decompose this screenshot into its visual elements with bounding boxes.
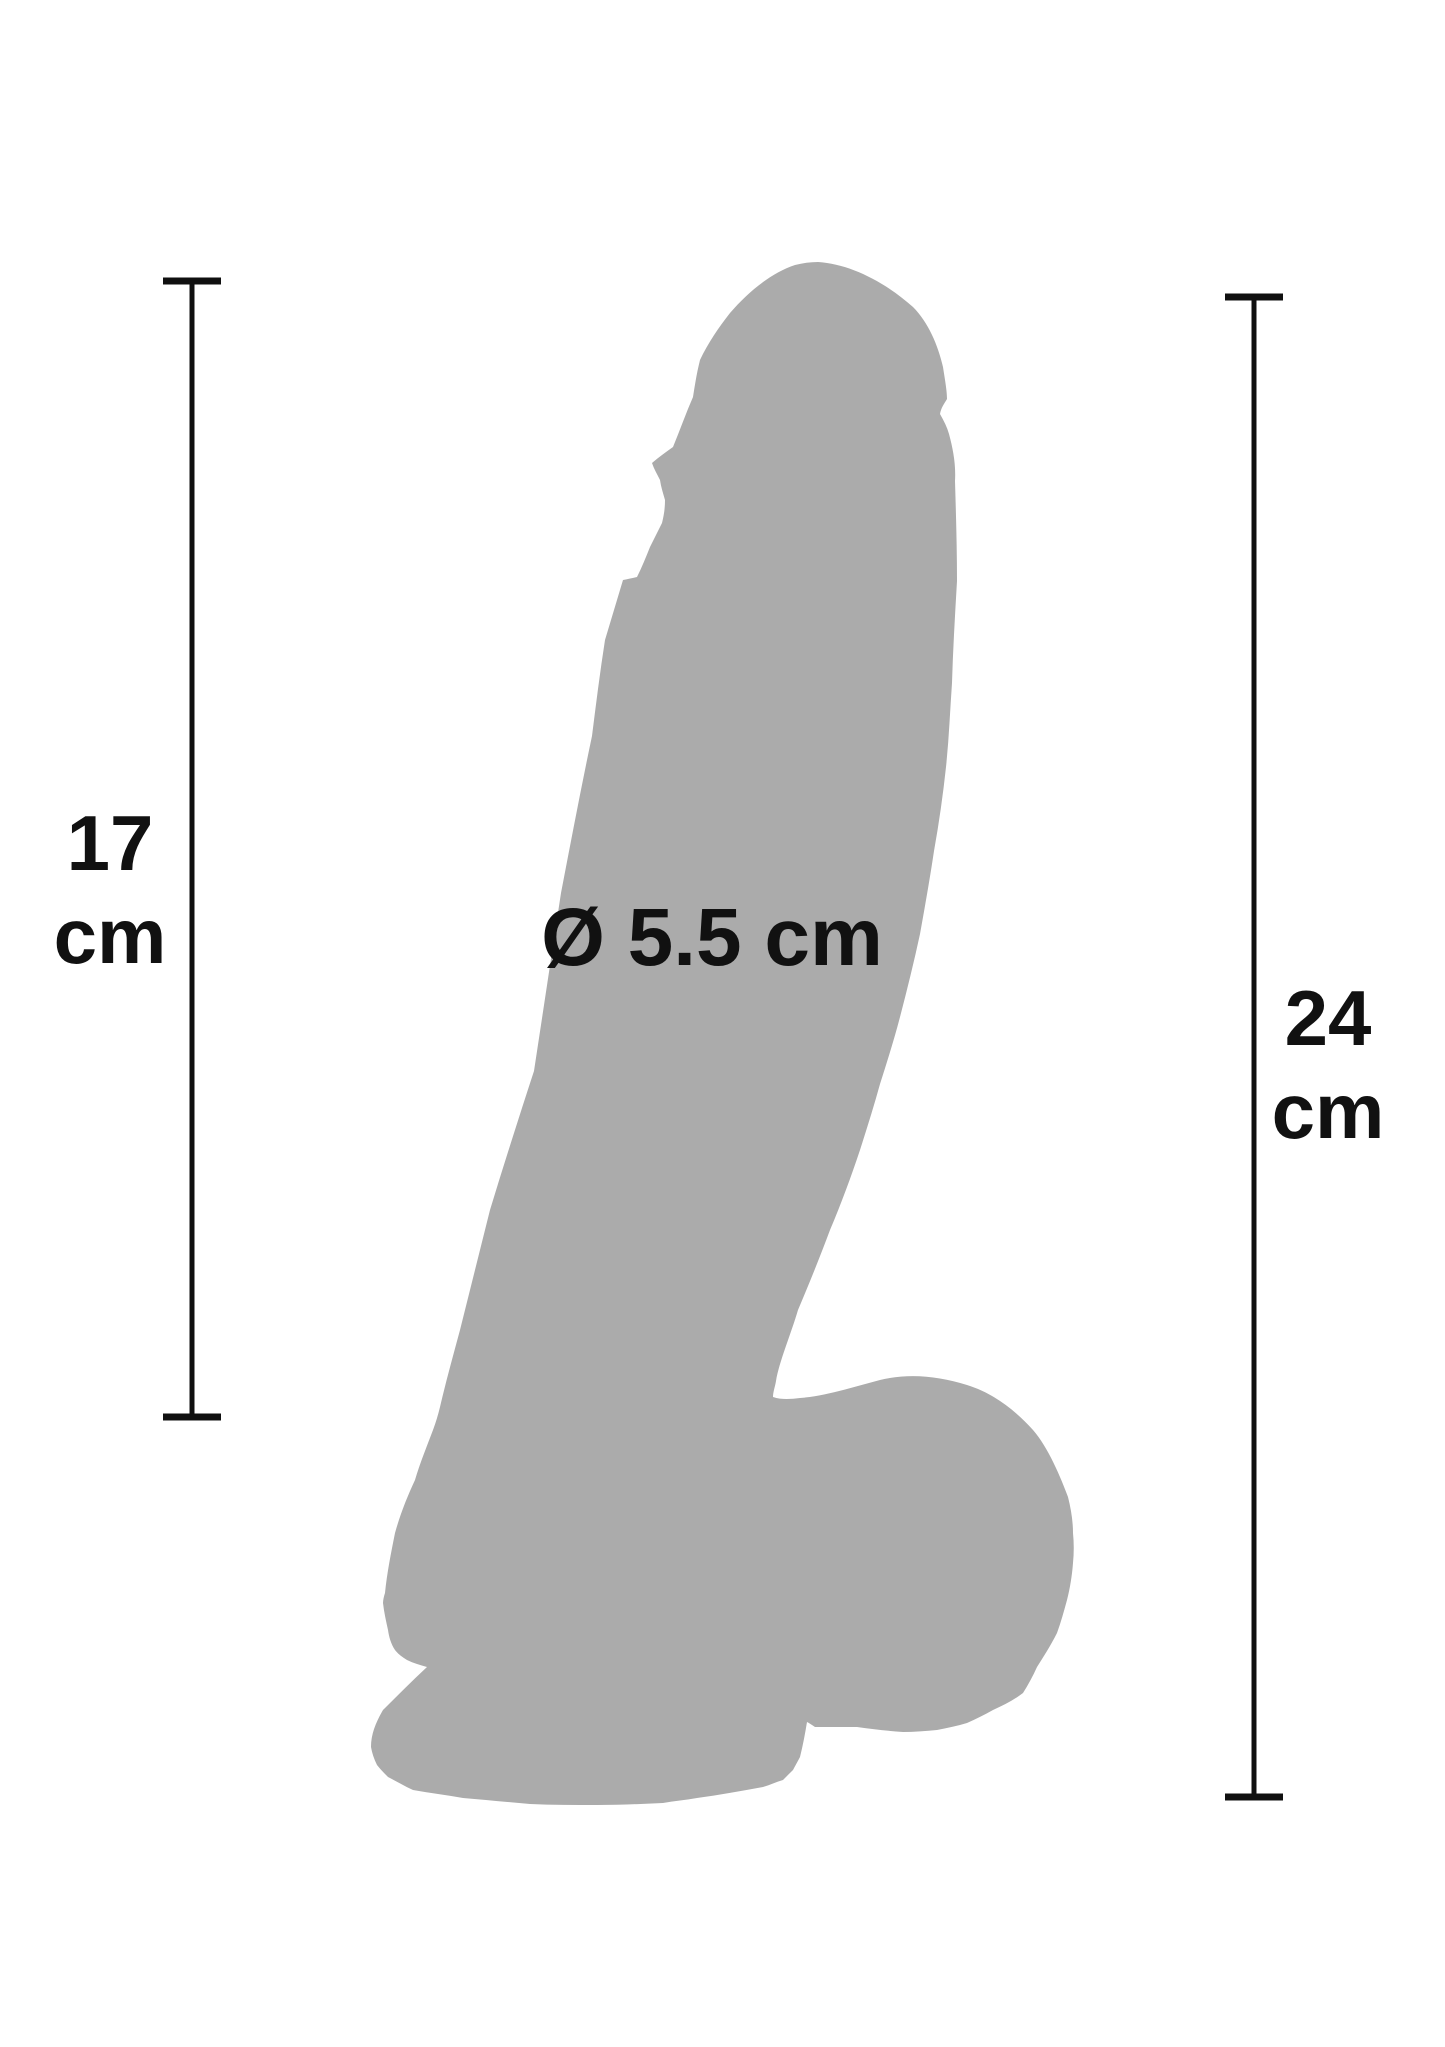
figure-artwork	[0, 0, 1445, 2047]
length-insertable-label: 17 cm	[20, 797, 200, 983]
product-silhouette	[371, 262, 1074, 1805]
length-total-label: 24 cm	[1238, 972, 1418, 1158]
length-insertable-unit: cm	[20, 890, 200, 983]
length-total-value: 24	[1238, 972, 1418, 1065]
product-dimension-diagram: 17 cm 24 cm Ø 5.5 cm	[0, 0, 1445, 2047]
length-total-unit: cm	[1238, 1065, 1418, 1158]
length-insertable-value: 17	[20, 797, 200, 890]
diameter-label: Ø 5.5 cm	[462, 893, 962, 983]
